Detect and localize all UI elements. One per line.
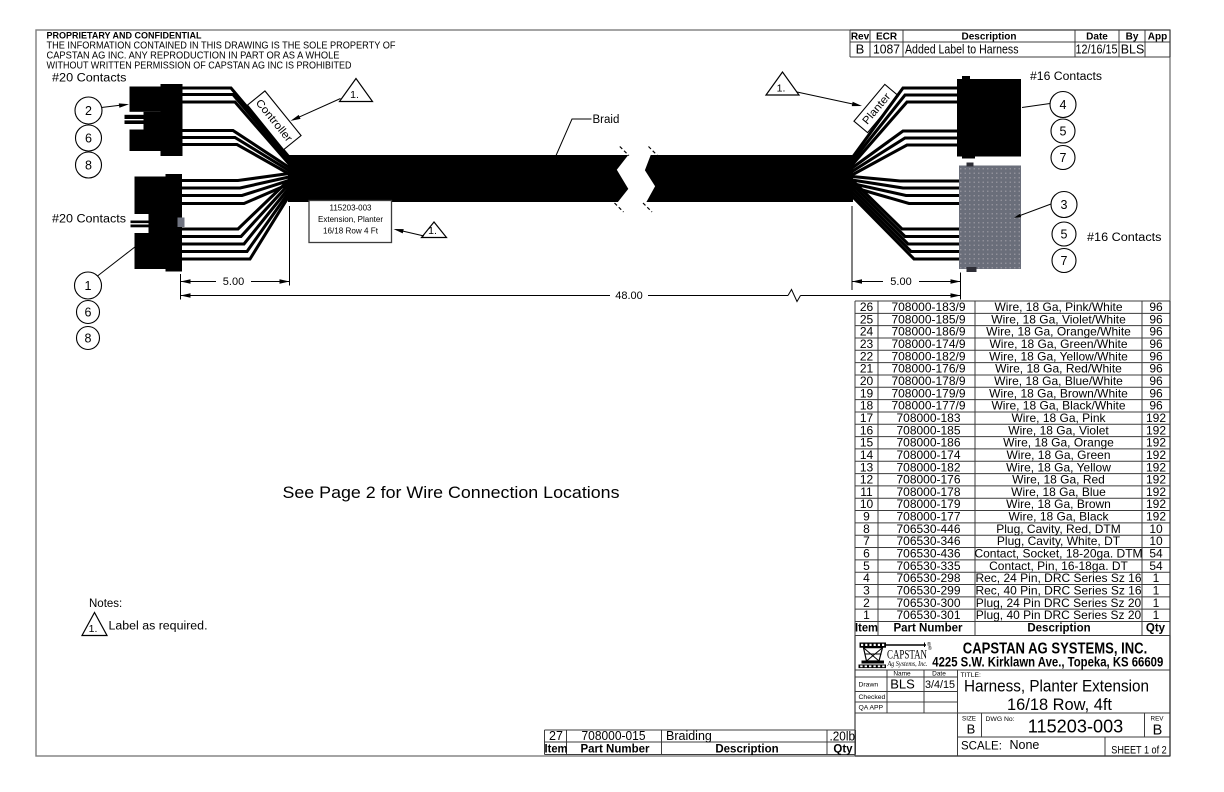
svg-text:Qty: Qty (833, 744, 853, 756)
svg-text:Extension, Planter: Extension, Planter (318, 214, 383, 224)
svg-text:DWG No:: DWG No: (986, 716, 1015, 723)
svg-text:QA APP: QA APP (859, 705, 884, 712)
svg-text:1087: 1087 (873, 42, 900, 57)
svg-text:8: 8 (85, 331, 92, 345)
svg-text:Harness, Planter Extension: Harness, Planter Extension (964, 678, 1149, 696)
svg-text:Ag Systems, Inc.: Ag Systems, Inc. (887, 659, 928, 668)
svg-text:Braid: Braid (593, 114, 620, 126)
svg-text:#20 Contacts: #20 Contacts (52, 214, 126, 226)
svg-text:Drawn: Drawn (859, 682, 879, 689)
svg-text:3/4/15: 3/4/15 (925, 679, 955, 691)
svg-text:Part Number: Part Number (893, 623, 963, 635)
svg-text:None: None (1010, 738, 1040, 752)
svg-text:12/16/15: 12/16/15 (1076, 42, 1118, 57)
svg-text:115203-003: 115203-003 (330, 203, 372, 213)
svg-text:#16 Contacts: #16 Contacts (1030, 71, 1102, 83)
svg-text:4: 4 (1060, 98, 1067, 112)
svg-text:#16 Contacts: #16 Contacts (1087, 232, 1162, 244)
svg-text:7: 7 (1061, 254, 1068, 268)
svg-text:27: 27 (549, 729, 563, 743)
svg-text:Checked: Checked (859, 694, 886, 701)
svg-text:Qty: Qty (1146, 623, 1166, 635)
svg-text:7: 7 (1060, 151, 1067, 165)
svg-text:BLS: BLS (1121, 42, 1145, 57)
svg-text:1.: 1. (428, 225, 437, 237)
svg-text:115203-003: 115203-003 (1028, 716, 1124, 737)
svg-text:6: 6 (85, 305, 92, 319)
svg-text:3: 3 (1061, 198, 1068, 212)
svg-text:SHEET 1 of 2: SHEET 1 of 2 (1111, 745, 1167, 757)
svg-text:®: ® (928, 645, 932, 652)
svg-text:2: 2 (85, 104, 92, 118)
svg-text:4225 S.W. Kirklawn Ave., Topek: 4225 S.W. Kirklawn Ave., Topeka, KS 6660… (932, 655, 1163, 670)
svg-text:5.00: 5.00 (223, 276, 244, 288)
svg-text:WITHOUT WRITTEN PERMISSION OF: WITHOUT WRITTEN PERMISSION OF CAPSTAN AG… (47, 61, 352, 72)
svg-text:Added Label to Harness: Added Label to Harness (905, 42, 1019, 57)
svg-text:Description: Description (1027, 623, 1090, 635)
svg-text:B: B (1153, 723, 1163, 739)
svg-text:1.: 1. (777, 83, 786, 95)
svg-text:Item: Item (855, 623, 878, 635)
svg-text:1: 1 (1153, 608, 1160, 622)
svg-text:706530-301: 706530-301 (896, 608, 960, 622)
svg-text:16/18 Row, 4ft: 16/18 Row, 4ft (1007, 696, 1112, 714)
svg-text:.20lb: .20lb (830, 730, 856, 744)
svg-text:Plug, 40 Pin DRC Series Sz 20: Plug, 40 Pin DRC Series Sz 20 (976, 608, 1142, 622)
svg-text:48.00: 48.00 (615, 290, 643, 302)
svg-text:Description: Description (715, 744, 778, 756)
svg-text:5.00: 5.00 (890, 276, 911, 288)
svg-text:B: B (856, 42, 865, 57)
svg-text:BLS: BLS (890, 677, 915, 692)
svg-text:#20 Contacts: #20 Contacts (52, 73, 127, 85)
svg-text:708000-015: 708000-015 (582, 729, 646, 743)
svg-text:Part Number: Part Number (580, 744, 650, 756)
svg-text:6: 6 (85, 131, 92, 145)
svg-text:1.: 1. (350, 89, 359, 101)
svg-text:16/18 Row 4 Ft: 16/18 Row 4 Ft (323, 226, 379, 236)
svg-text:Notes:: Notes: (89, 598, 122, 610)
svg-text:App: App (1148, 32, 1167, 43)
svg-text:B: B (967, 722, 976, 737)
svg-text:Item: Item (545, 744, 568, 756)
svg-text:1: 1 (863, 608, 870, 622)
svg-text:8: 8 (85, 158, 92, 172)
svg-text:5: 5 (1061, 227, 1068, 241)
svg-text:5: 5 (1060, 124, 1067, 138)
svg-text:See Page 2 for Wire Connection: See Page 2 for Wire Connection Locations (283, 484, 620, 502)
svg-text:Braiding: Braiding (666, 729, 712, 743)
svg-text:1.: 1. (89, 623, 98, 635)
svg-text:SCALE:: SCALE: (961, 741, 1002, 753)
svg-text:REV: REV (1151, 716, 1165, 723)
svg-text:1: 1 (85, 279, 92, 293)
svg-text:Label as required.: Label as required. (109, 621, 208, 633)
svg-text:Date: Date (932, 670, 946, 677)
